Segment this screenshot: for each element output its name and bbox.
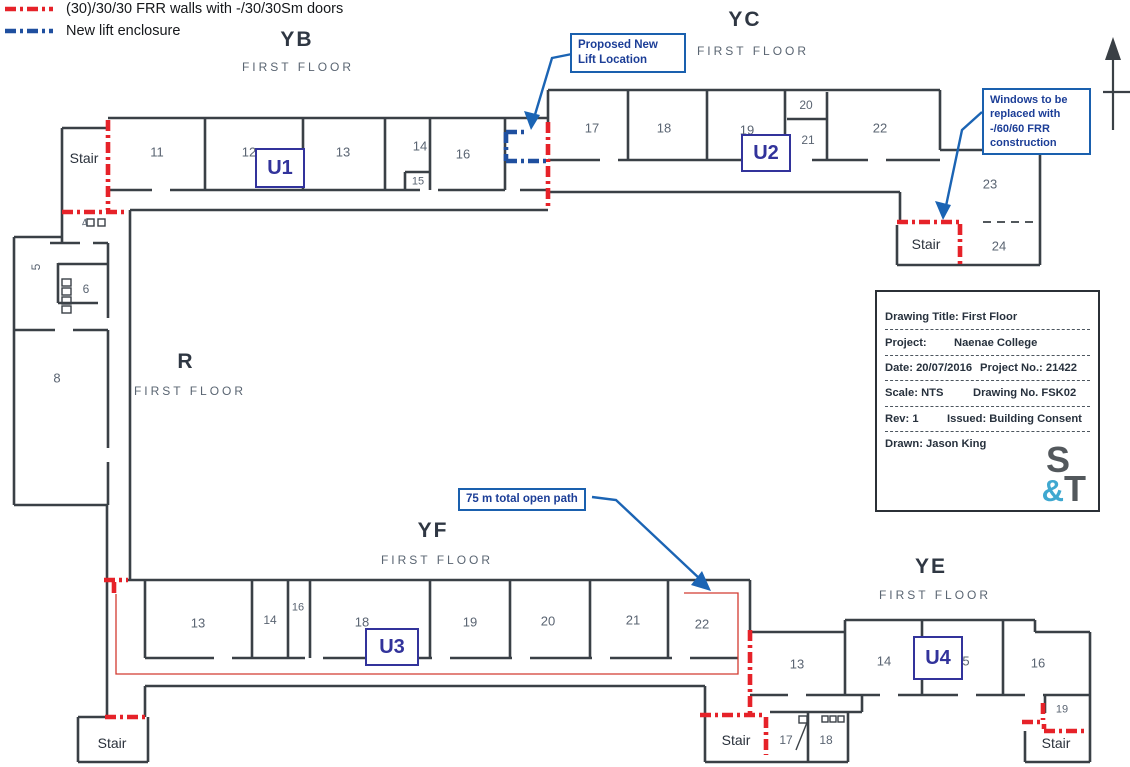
room-label: 16 (1031, 657, 1045, 670)
room-label: 23 (983, 178, 997, 191)
unit-tag: U1 (255, 148, 305, 188)
room-label: 5 (962, 655, 969, 668)
block-label-ye: YE (915, 555, 947, 579)
room-label: 21 (801, 134, 814, 146)
room-label: 11 (150, 146, 164, 159)
block-floor-yf: FIRST FLOOR (381, 553, 493, 567)
room-label: 18 (819, 734, 832, 746)
room-label: 17 (779, 734, 792, 746)
logo-t: T (1064, 468, 1086, 509)
room-label: 13 (191, 617, 205, 630)
open-path-line (116, 593, 738, 674)
title-block-row-project: Project: Naenae College (885, 330, 1090, 355)
floor-plan-page: (30)/30/30 FRR walls with -/30/30Sm door… (0, 0, 1130, 767)
room-label: 24 (992, 240, 1006, 253)
project-label: Project: (885, 337, 927, 349)
stair-label: Stair (912, 237, 941, 251)
room-label: 8 (53, 372, 60, 385)
room-label: 20 (799, 99, 812, 111)
room-label: 16 (292, 603, 304, 614)
frr-wall-line-sample-icon (2, 4, 56, 14)
issued-value: Issued: Building Consent (947, 413, 1082, 425)
room-label: 18 (355, 616, 369, 629)
legend-label: (30)/30/30 FRR walls with -/30/30Sm door… (66, 1, 343, 17)
room-label: 15 (412, 177, 424, 188)
title-block-row-scale: Scale: NTS Drawing No. FSK02 (885, 381, 1090, 406)
title-block-row-rev: Rev: 1 Issued: Building Consent (885, 407, 1090, 432)
legend-item-new-lift: New lift enclosure (2, 23, 180, 39)
block-floor-r: FIRST FLOOR (134, 384, 246, 398)
room-label: 20 (541, 615, 555, 628)
unit-tag: U4 (913, 636, 963, 680)
block-label-r: R (177, 350, 194, 374)
room-label: 14 (877, 655, 891, 668)
room-label: 16 (456, 148, 470, 161)
room-label: 13 (336, 146, 350, 159)
room-label: 19 (1056, 705, 1068, 716)
block-floor-yc: FIRST FLOOR (697, 44, 809, 58)
company-logo: S &T (1042, 445, 1086, 504)
block-label-yb: YB (280, 28, 313, 52)
room-label: 14 (413, 140, 427, 153)
new-lift-enclosure-lines (506, 132, 546, 161)
unit-tag: U3 (365, 628, 419, 666)
room-label: 6 (83, 283, 90, 295)
logo-ampersand: & (1042, 473, 1064, 508)
callout-windows-replaced: Windows to be replaced with -/60/60 FRR … (982, 88, 1091, 155)
room-label: 19 (463, 616, 477, 629)
room-label: 5 (30, 264, 42, 271)
callout-proposed-lift: Proposed New Lift Location (570, 33, 686, 73)
room-label: 22 (695, 618, 709, 631)
room-label: 17 (585, 122, 599, 135)
room-label: 22 (873, 122, 887, 135)
room-label: 18 (657, 122, 671, 135)
stair-label: Stair (1042, 736, 1071, 750)
door-swing-line (796, 720, 808, 750)
unit-tag: U2 (741, 134, 791, 172)
north-arrow-icon (1103, 37, 1130, 130)
title-block: Drawing Title: First Floor Project: Naen… (875, 290, 1100, 512)
stair-label: Stair (70, 151, 99, 165)
project-no-value: Project No.: 21422 (980, 362, 1077, 374)
title-block-row-date: Date: 20/07/2016 Project No.: 21422 (885, 356, 1090, 381)
legend-item-frr-walls: (30)/30/30 FRR walls with -/30/30Sm door… (2, 1, 343, 17)
toilet-fixtures (62, 219, 844, 723)
drawing-no-value: Drawing No. FSK02 (973, 387, 1076, 399)
block-label-yc: YC (728, 8, 761, 32)
title-block-row-title: Drawing Title: First Floor (885, 305, 1090, 330)
scale-value: Scale: NTS (885, 387, 943, 399)
room-label: 14 (263, 614, 276, 626)
room-label: 13 (790, 658, 804, 671)
callout-open-path: 75 m total open path (458, 488, 586, 511)
stair-label: Stair (722, 733, 751, 747)
lift-enclosure-line-sample-icon (2, 26, 56, 36)
date-value: Date: 20/07/2016 (885, 362, 972, 374)
project-value: Naenae College (954, 337, 1037, 349)
drawing-title: Drawing Title: First Floor (885, 311, 1017, 323)
stair-label: Stair (98, 736, 127, 750)
block-floor-yb: FIRST FLOOR (242, 60, 354, 74)
drawn-value: Drawn: Jason King (885, 438, 986, 450)
block-label-yf: YF (418, 519, 449, 543)
block-floor-ye: FIRST FLOOR (879, 588, 991, 602)
legend-label: New lift enclosure (66, 23, 180, 39)
rev-value: Rev: 1 (885, 413, 919, 425)
room-label: 21 (626, 614, 640, 627)
